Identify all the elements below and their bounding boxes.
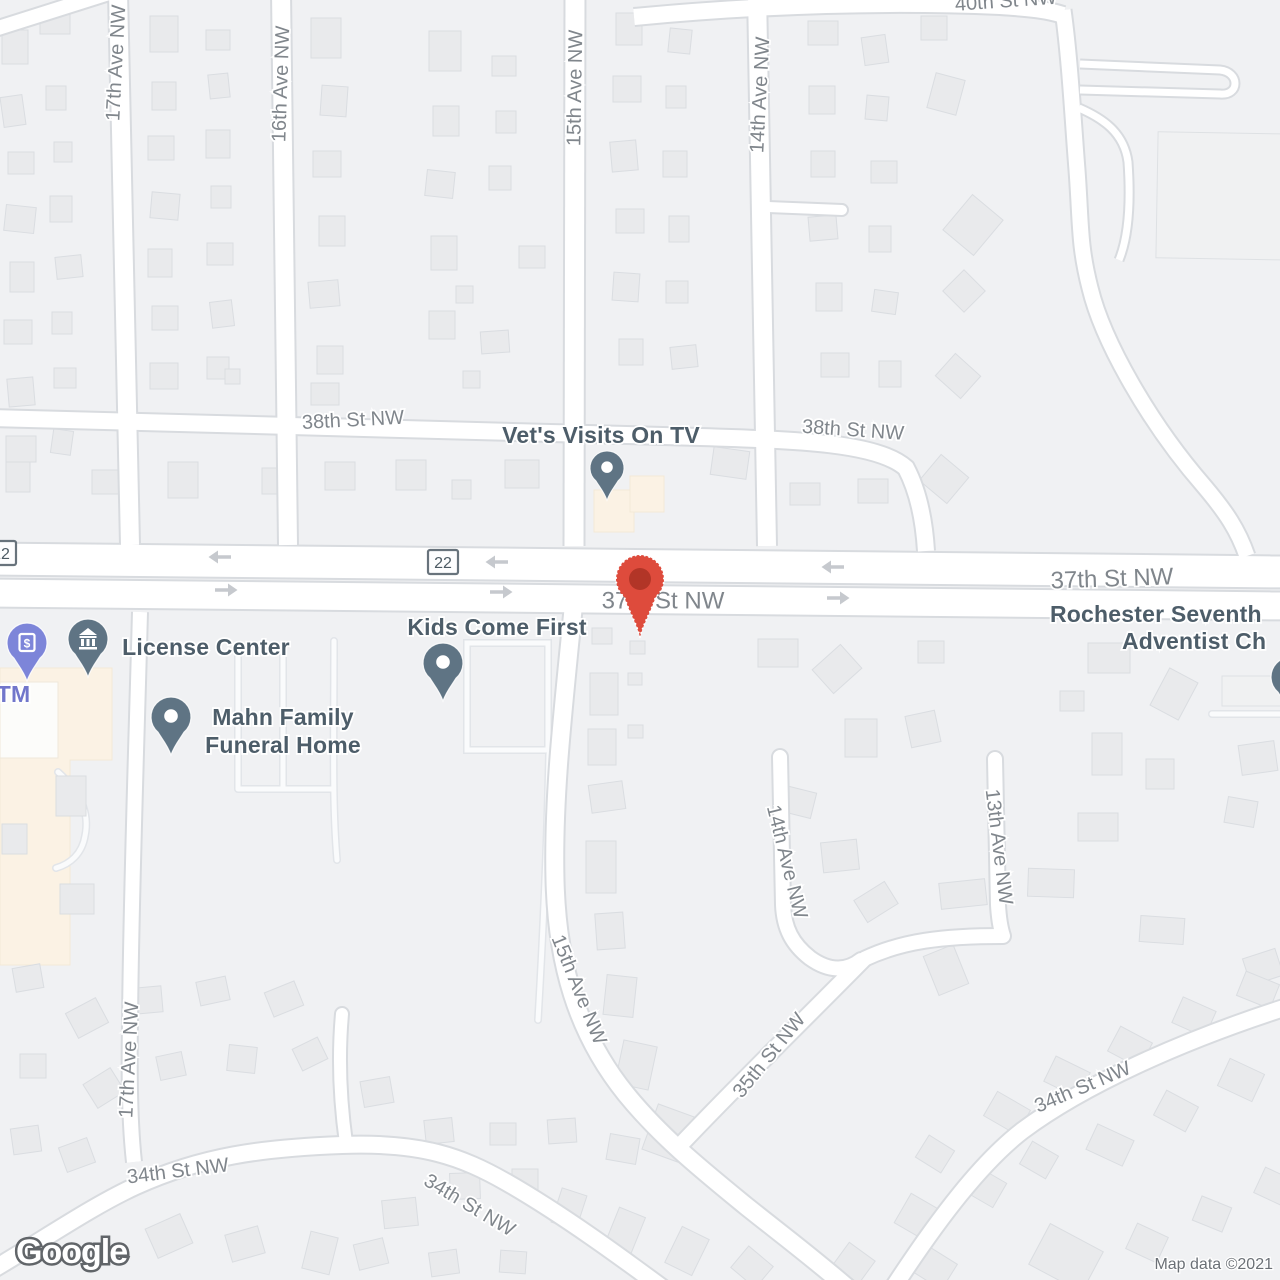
building-footprint xyxy=(492,56,516,76)
building-footprint xyxy=(758,639,798,667)
building-footprint xyxy=(1060,691,1084,711)
street-label: 35th St NW xyxy=(729,1009,811,1102)
building-footprint xyxy=(150,16,178,52)
building-footprint xyxy=(613,76,641,102)
building-footprint xyxy=(505,460,539,488)
building-footprint xyxy=(496,111,516,133)
building-footprint xyxy=(630,641,645,654)
building-footprint xyxy=(50,196,72,222)
dot-icon xyxy=(601,461,613,473)
poi-label-rochester-seventh-day-adventist-church: Adventist Ch xyxy=(1122,628,1266,654)
poi-label-rochester-seventh-day-adventist-church: Rochester Seventh xyxy=(1050,601,1262,627)
building-footprint xyxy=(428,1249,459,1277)
poi-pin-kids-come-first[interactable] xyxy=(423,643,463,701)
building-footprint xyxy=(927,73,965,116)
building-footprint xyxy=(610,140,639,172)
building-footprint xyxy=(854,881,898,922)
building-footprint xyxy=(54,142,72,162)
building-footprint xyxy=(429,311,455,339)
building-footprint xyxy=(666,86,686,108)
building-footprint xyxy=(8,152,34,174)
building-footprint xyxy=(588,781,626,813)
building-footprint xyxy=(669,216,689,242)
building-footprint xyxy=(319,216,345,246)
building-footprint xyxy=(208,73,230,99)
building-footprint xyxy=(808,215,838,241)
building-footprint xyxy=(1254,1167,1280,1207)
building-footprint xyxy=(915,1135,954,1173)
highway-shield: 22 xyxy=(0,541,16,565)
building-footprint xyxy=(905,710,941,748)
building-footprint xyxy=(382,1197,419,1228)
building-footprint xyxy=(1224,797,1258,828)
building-footprint xyxy=(628,673,642,685)
building-footprint xyxy=(1192,1196,1231,1232)
building-footprint xyxy=(808,21,838,45)
building-footprint xyxy=(396,460,426,490)
building-footprint xyxy=(616,209,644,233)
building-footprint xyxy=(429,31,461,71)
building-footprint xyxy=(152,306,178,330)
building-footprint xyxy=(360,1077,394,1108)
building-footprint xyxy=(156,1052,186,1081)
building-footprint xyxy=(821,353,849,377)
building-footprint xyxy=(588,729,616,765)
building-footprint xyxy=(148,136,174,160)
building-footprint xyxy=(519,246,545,268)
building-footprint xyxy=(816,283,842,311)
building-footprint xyxy=(424,1118,454,1145)
building-footprint xyxy=(710,447,750,480)
building-footprint xyxy=(595,912,625,950)
building-footprint xyxy=(603,975,637,1018)
building-footprint xyxy=(871,161,897,183)
poi-label-license-center: License Center xyxy=(122,634,290,660)
building-footprint xyxy=(592,628,612,644)
building-footprint xyxy=(225,1226,265,1262)
street-label: 37th St NW xyxy=(1050,563,1174,594)
building-footprint xyxy=(879,361,901,387)
google-logo[interactable]: Google xyxy=(16,1233,127,1271)
building-footprint xyxy=(456,286,473,303)
building-footprint xyxy=(590,673,618,715)
building-footprint xyxy=(4,320,32,344)
poi-label-atm: ATM xyxy=(0,681,30,707)
building-footprint xyxy=(489,166,511,190)
poi-label-kids-come-first: Kids Come First xyxy=(407,614,587,640)
building-footprint xyxy=(10,262,34,292)
building-footprint xyxy=(869,226,891,252)
building-footprint xyxy=(586,841,616,893)
building-footprint xyxy=(668,28,692,54)
building-footprint xyxy=(7,377,35,407)
building-footprint xyxy=(227,1045,258,1074)
building-footprint xyxy=(490,1123,516,1145)
building-footprint xyxy=(918,641,944,663)
building-footprint xyxy=(145,1214,193,1259)
building-footprint xyxy=(923,945,968,996)
building-footprint xyxy=(225,369,240,384)
building-footprint xyxy=(1217,1058,1264,1101)
building-footprint xyxy=(50,429,73,456)
building-footprint xyxy=(206,130,230,158)
building-footprint xyxy=(1238,741,1278,776)
building-footprint xyxy=(311,18,341,58)
building-footprint xyxy=(1092,733,1122,775)
marker-dot-icon xyxy=(629,568,651,590)
street-label: 15th Ave NW xyxy=(563,30,587,147)
building-footprint xyxy=(939,879,987,910)
building-footprint xyxy=(150,363,178,389)
building-footprint xyxy=(209,300,234,328)
building-footprint xyxy=(943,270,985,312)
building-footprint xyxy=(292,1037,328,1071)
street-label: 34th St NW xyxy=(1031,1057,1134,1117)
building-footprint xyxy=(845,719,877,757)
building-footprint xyxy=(865,95,889,121)
building-footprint xyxy=(4,205,37,234)
building-footprint xyxy=(811,151,835,177)
building-footprint xyxy=(302,1231,338,1275)
building-footprint xyxy=(935,353,980,398)
building-footprint xyxy=(54,368,76,388)
building-footprint xyxy=(452,480,471,499)
red-map-marker[interactable] xyxy=(616,555,664,637)
building-footprint xyxy=(665,1226,709,1275)
building-footprint xyxy=(606,1134,640,1165)
building-footprint xyxy=(433,106,459,136)
building-footprint xyxy=(547,1118,577,1144)
map-image: 17th Ave NW16th Ave NW15th Ave NW14th Av… xyxy=(0,0,1280,1280)
building-footprint xyxy=(20,1054,46,1078)
building-footprint xyxy=(1146,759,1174,789)
building-footprint xyxy=(12,964,44,992)
poi-label-mahn-family-funeral-home: Funeral Home xyxy=(205,732,361,758)
building-footprint xyxy=(1029,1224,1104,1280)
map-attribution: Map data ©2021 xyxy=(1154,1256,1273,1273)
dot-icon xyxy=(164,709,178,723)
building-footprint xyxy=(858,479,888,503)
building-footprint xyxy=(196,976,230,1006)
dot-icon xyxy=(436,655,450,669)
building-footprint xyxy=(1028,868,1075,898)
building-footprint xyxy=(1156,132,1280,260)
street-label: 13th Ave NW xyxy=(981,788,1017,906)
map-canvas[interactable]: 17th Ave NW16th Ave NW15th Ave NW14th Av… xyxy=(0,0,1280,1280)
building-footprint xyxy=(612,272,640,302)
building-footprint xyxy=(207,243,233,265)
building-footprint xyxy=(1139,915,1185,944)
building-footprint xyxy=(431,236,457,270)
building-footprint xyxy=(353,1238,388,1270)
building-footprint xyxy=(320,85,348,117)
building-footprint xyxy=(148,249,172,277)
selected-place-marker[interactable] xyxy=(616,555,664,637)
building-footprint xyxy=(1086,1124,1134,1166)
highway-shield: 22 xyxy=(428,550,458,574)
street-label: 14th Ave NW xyxy=(762,803,812,921)
building-footprint xyxy=(1150,668,1198,720)
building-footprint xyxy=(1020,1141,1059,1179)
building-footprint xyxy=(2,824,27,854)
building-footprint xyxy=(663,151,687,177)
building-footprint xyxy=(731,1246,774,1280)
building-footprint xyxy=(60,884,94,914)
building-footprint xyxy=(264,981,303,1017)
building-footprint xyxy=(56,776,86,816)
poi-pin-mahn-family-funeral-home[interactable] xyxy=(151,697,191,755)
building-footprint xyxy=(10,1125,41,1155)
svg-text:22: 22 xyxy=(434,555,452,572)
building-footprint xyxy=(311,383,339,405)
building-footprint xyxy=(670,345,698,370)
street-label: 16th Ave NW xyxy=(268,25,294,142)
building-footprint xyxy=(628,725,643,738)
building-footprint xyxy=(463,371,480,388)
building-footprint xyxy=(313,151,341,177)
poi-label-mahn-family-funeral-home: Mahn Family xyxy=(212,704,354,730)
building-footprint xyxy=(666,281,688,303)
building-footprint xyxy=(1078,813,1118,841)
building-footprint xyxy=(0,95,26,128)
building-footprint xyxy=(6,436,36,462)
building-footprint xyxy=(499,1250,526,1274)
building-footprint xyxy=(425,170,456,199)
building-footprint xyxy=(861,34,889,65)
building-footprint xyxy=(619,339,643,365)
building-footprint xyxy=(872,289,899,314)
building-footprint xyxy=(52,312,72,334)
building-footprint xyxy=(152,82,176,110)
building-footprint xyxy=(46,86,66,110)
building-footprint xyxy=(65,998,108,1039)
svg-text:$: $ xyxy=(24,637,31,651)
building-footprint xyxy=(790,483,820,505)
building-footprint xyxy=(211,186,231,208)
building-footprint xyxy=(2,30,28,64)
building-footprint xyxy=(1154,1090,1199,1132)
poi-label-vets-visits-on-tv: Vet's Visits On TV xyxy=(502,422,700,448)
building-footprint xyxy=(812,644,862,693)
building-footprint xyxy=(6,462,30,492)
building-footprint xyxy=(943,195,1003,256)
building-footprint xyxy=(821,839,860,873)
building-footprint xyxy=(325,462,355,490)
building-footprint xyxy=(150,192,180,220)
building-footprint xyxy=(308,280,340,309)
svg-text:22: 22 xyxy=(0,546,10,563)
building-footprint xyxy=(921,16,947,40)
building-footprint xyxy=(206,30,230,50)
building-footprint xyxy=(317,346,343,374)
building-footprint xyxy=(55,255,83,280)
building-footprint xyxy=(58,1138,95,1173)
building-footprint xyxy=(480,330,509,354)
building-footprint xyxy=(168,462,198,498)
building-footprint xyxy=(809,86,835,114)
